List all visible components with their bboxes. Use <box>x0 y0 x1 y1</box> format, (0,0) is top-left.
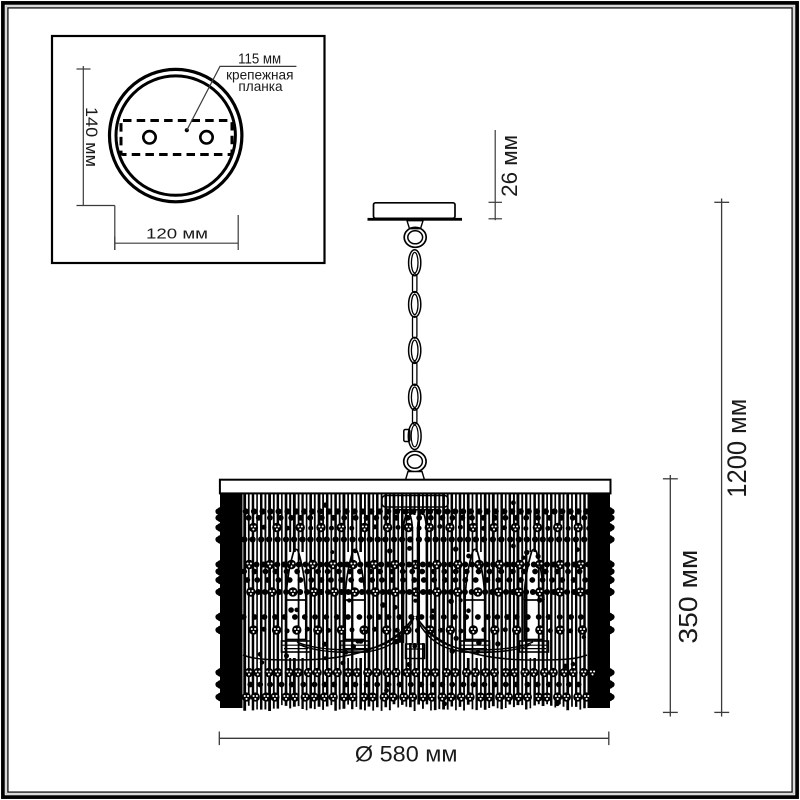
svg-text:140 мм: 140 мм <box>82 107 100 167</box>
svg-text:планка: планка <box>238 79 283 94</box>
svg-text:Ø 580 мм: Ø 580 мм <box>355 742 458 767</box>
svg-text:115 мм: 115 мм <box>238 52 281 68</box>
svg-text:1200 мм: 1200 мм <box>722 399 752 498</box>
svg-text:26 мм: 26 мм <box>497 135 522 197</box>
svg-text:120 мм: 120 мм <box>146 225 208 242</box>
svg-text:350 мм: 350 мм <box>673 550 703 644</box>
